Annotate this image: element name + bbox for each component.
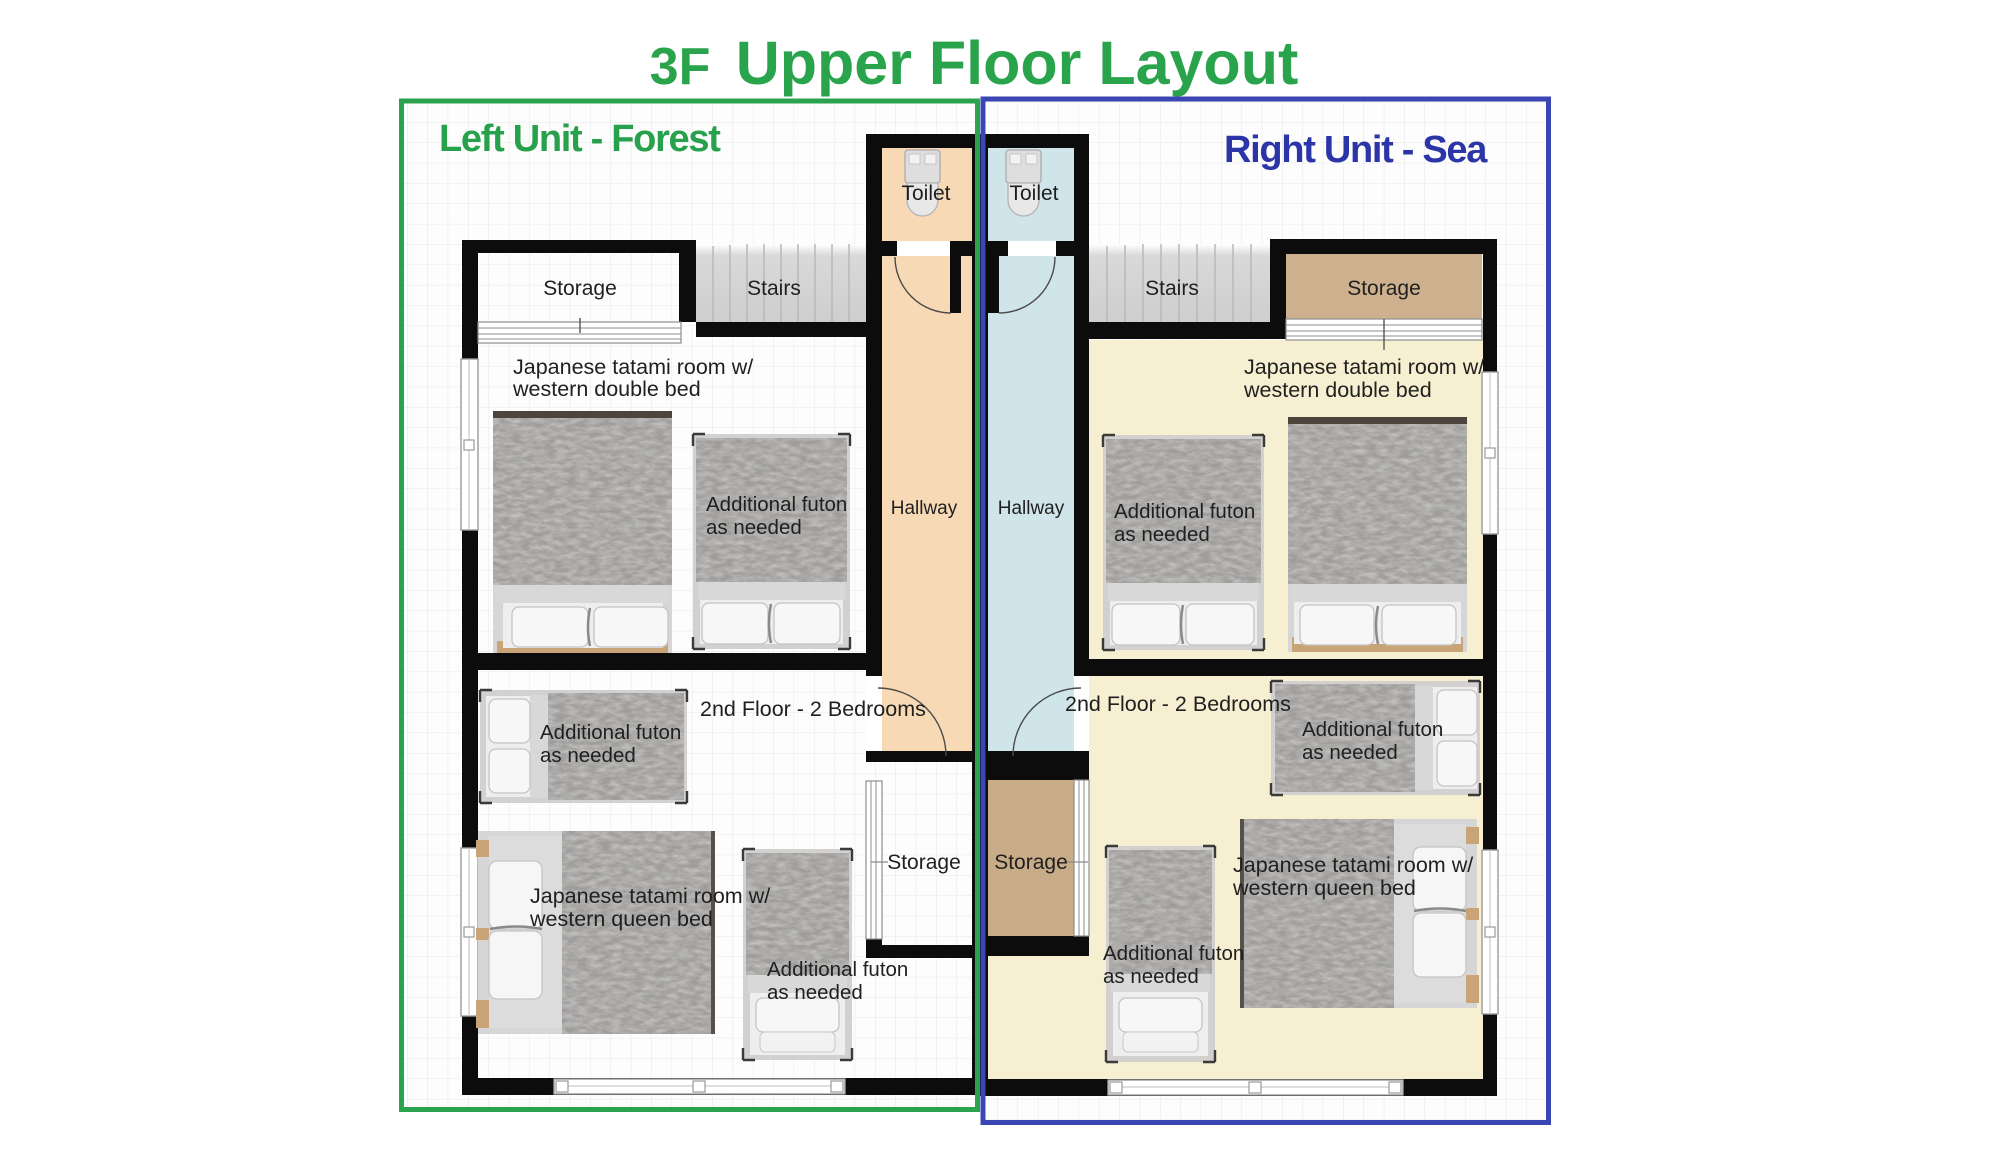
svg-text:Hallway: Hallway	[891, 498, 958, 519]
svg-text:Additional futon: Additional futon	[1302, 718, 1443, 741]
svg-text:Upper Floor Layout: Upper Floor Layout	[736, 29, 1299, 97]
svg-text:as needed: as needed	[540, 744, 636, 767]
svg-text:western queen bed: western queen bed	[1232, 876, 1416, 900]
svg-text:3F: 3F	[650, 38, 711, 96]
svg-text:Additional futon: Additional futon	[1114, 500, 1255, 523]
svg-text:Additional futon: Additional futon	[767, 958, 908, 981]
svg-text:Additional futon: Additional futon	[540, 721, 681, 744]
svg-text:Japanese tatami room w/: Japanese tatami room w/	[513, 355, 753, 379]
svg-text:western double bed: western double bed	[1243, 378, 1432, 402]
svg-text:Japanese tatami room w/: Japanese tatami room w/	[530, 884, 770, 908]
svg-text:2nd Floor - 2 Bedrooms: 2nd Floor - 2 Bedrooms	[700, 697, 926, 721]
svg-text:as needed: as needed	[767, 981, 863, 1004]
svg-text:as needed: as needed	[706, 516, 802, 539]
svg-text:Storage: Storage	[543, 277, 617, 300]
svg-text:Stairs: Stairs	[1145, 277, 1199, 300]
svg-text:2nd Floor - 2 Bedrooms: 2nd Floor - 2 Bedrooms	[1065, 692, 1291, 716]
svg-text:as needed: as needed	[1114, 523, 1210, 546]
svg-text:Storage: Storage	[994, 851, 1068, 874]
svg-text:as needed: as needed	[1103, 965, 1199, 988]
svg-text:western queen bed: western queen bed	[529, 907, 713, 931]
svg-text:Right Unit - Sea: Right Unit - Sea	[1224, 129, 1488, 171]
svg-text:Japanese tatami room w/: Japanese tatami room w/	[1244, 355, 1484, 379]
svg-text:Left Unit - Forest: Left Unit - Forest	[439, 118, 721, 160]
svg-text:Toilet: Toilet	[901, 182, 950, 205]
svg-text:Additional futon: Additional futon	[706, 493, 847, 516]
svg-text:western double bed: western double bed	[512, 377, 701, 401]
svg-text:Toilet: Toilet	[1009, 182, 1058, 205]
svg-text:Storage: Storage	[1347, 277, 1421, 300]
svg-text:Hallway: Hallway	[998, 498, 1065, 519]
svg-text:Stairs: Stairs	[747, 277, 801, 300]
svg-text:as needed: as needed	[1302, 741, 1398, 764]
svg-text:Storage: Storage	[887, 851, 961, 874]
svg-text:Japanese tatami room w/: Japanese tatami room w/	[1233, 853, 1473, 877]
svg-text:Additional futon: Additional futon	[1103, 942, 1244, 965]
